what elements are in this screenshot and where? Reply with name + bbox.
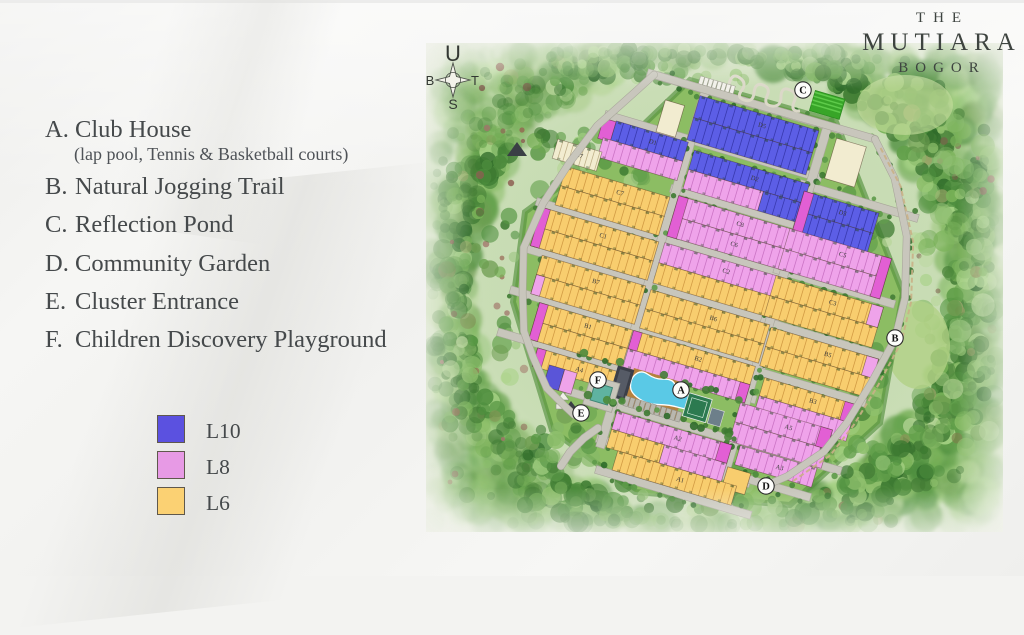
svg-text:D: D [762, 482, 770, 493]
svg-text:T: T [471, 73, 479, 88]
svg-text:C: C [799, 86, 807, 97]
svg-text:U: U [445, 41, 461, 66]
svg-text:A: A [677, 386, 685, 397]
svg-text:B: B [891, 334, 898, 345]
svg-text:B: B [426, 73, 435, 88]
svg-text:S: S [448, 96, 457, 112]
svg-text:F: F [595, 376, 601, 387]
svg-text:E: E [577, 409, 584, 420]
